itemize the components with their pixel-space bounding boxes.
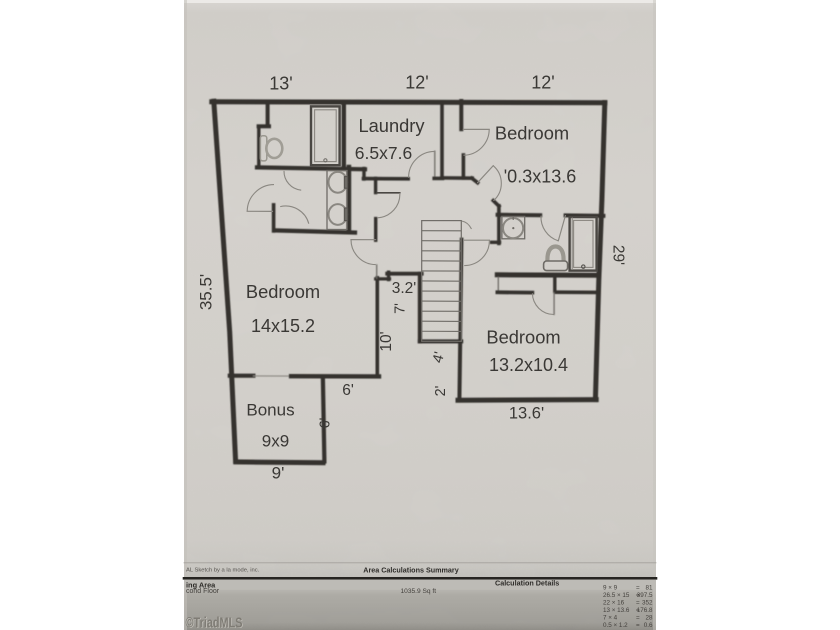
svg-text:=: = xyxy=(636,622,640,629)
svg-text:Bonus: Bonus xyxy=(246,401,294,420)
svg-text:0.6: 0.6 xyxy=(644,622,653,629)
svg-text:397.5: 397.5 xyxy=(637,592,653,599)
svg-text:cond Floor: cond Floor xyxy=(186,588,220,595)
svg-text:22 × 16: 22 × 16 xyxy=(603,600,625,607)
svg-text:Bedroom: Bedroom xyxy=(495,123,569,144)
svg-text:9x9: 9x9 xyxy=(262,432,289,451)
svg-text:13': 13' xyxy=(269,74,292,94)
svg-text:2': 2' xyxy=(433,385,449,396)
svg-text:AL Sketch by a la mode, inc.: AL Sketch by a la mode, inc. xyxy=(186,568,260,574)
svg-text:Bedroom: Bedroom xyxy=(486,327,560,348)
svg-text:'0.3x13.6: '0.3x13.6 xyxy=(504,167,577,187)
svg-text:28: 28 xyxy=(645,614,653,621)
svg-text:176.8: 176.8 xyxy=(637,607,653,614)
svg-text:12': 12' xyxy=(531,73,554,93)
svg-text:=: = xyxy=(636,600,640,607)
svg-text:=: = xyxy=(636,585,640,592)
svg-text:352: 352 xyxy=(642,600,653,607)
svg-text:6.5x7.6: 6.5x7.6 xyxy=(355,143,412,163)
svg-text:12': 12' xyxy=(405,73,428,93)
svg-text:1035.9 Sq ft: 1035.9 Sq ft xyxy=(401,588,437,595)
svg-text:13 × 13.6: 13 × 13.6 xyxy=(603,607,630,614)
svg-text:35.5': 35.5' xyxy=(197,274,216,310)
svg-text:10': 10' xyxy=(378,331,395,351)
svg-text:3.2': 3.2' xyxy=(392,280,417,297)
svg-text:0.5 × 1.2: 0.5 × 1.2 xyxy=(603,622,628,629)
svg-text:6': 6' xyxy=(342,382,354,399)
svg-text:7 × 4: 7 × 4 xyxy=(603,614,618,621)
svg-text:14x15.2: 14x15.2 xyxy=(251,316,315,336)
svg-text:Calculation Details: Calculation Details xyxy=(495,579,559,588)
svg-text:6': 6' xyxy=(318,417,334,428)
svg-text:81: 81 xyxy=(645,585,653,592)
svg-text:13.6': 13.6' xyxy=(509,405,544,423)
svg-text:Bedroom: Bedroom xyxy=(246,281,320,302)
svg-text:Area Calculations Summary: Area Calculations Summary xyxy=(363,566,458,575)
svg-text:Laundry: Laundry xyxy=(358,115,425,136)
svg-text:13.2x10.4: 13.2x10.4 xyxy=(489,355,568,375)
svg-text:7': 7' xyxy=(392,303,408,314)
svg-text:©TriadMLS: ©TriadMLS xyxy=(186,616,243,630)
svg-text:9': 9' xyxy=(272,464,285,483)
svg-text:=: = xyxy=(636,614,640,621)
svg-text:29': 29' xyxy=(610,245,627,265)
svg-text:26.5 × 15: 26.5 × 15 xyxy=(603,592,630,599)
svg-text:9 × 9: 9 × 9 xyxy=(603,585,618,592)
